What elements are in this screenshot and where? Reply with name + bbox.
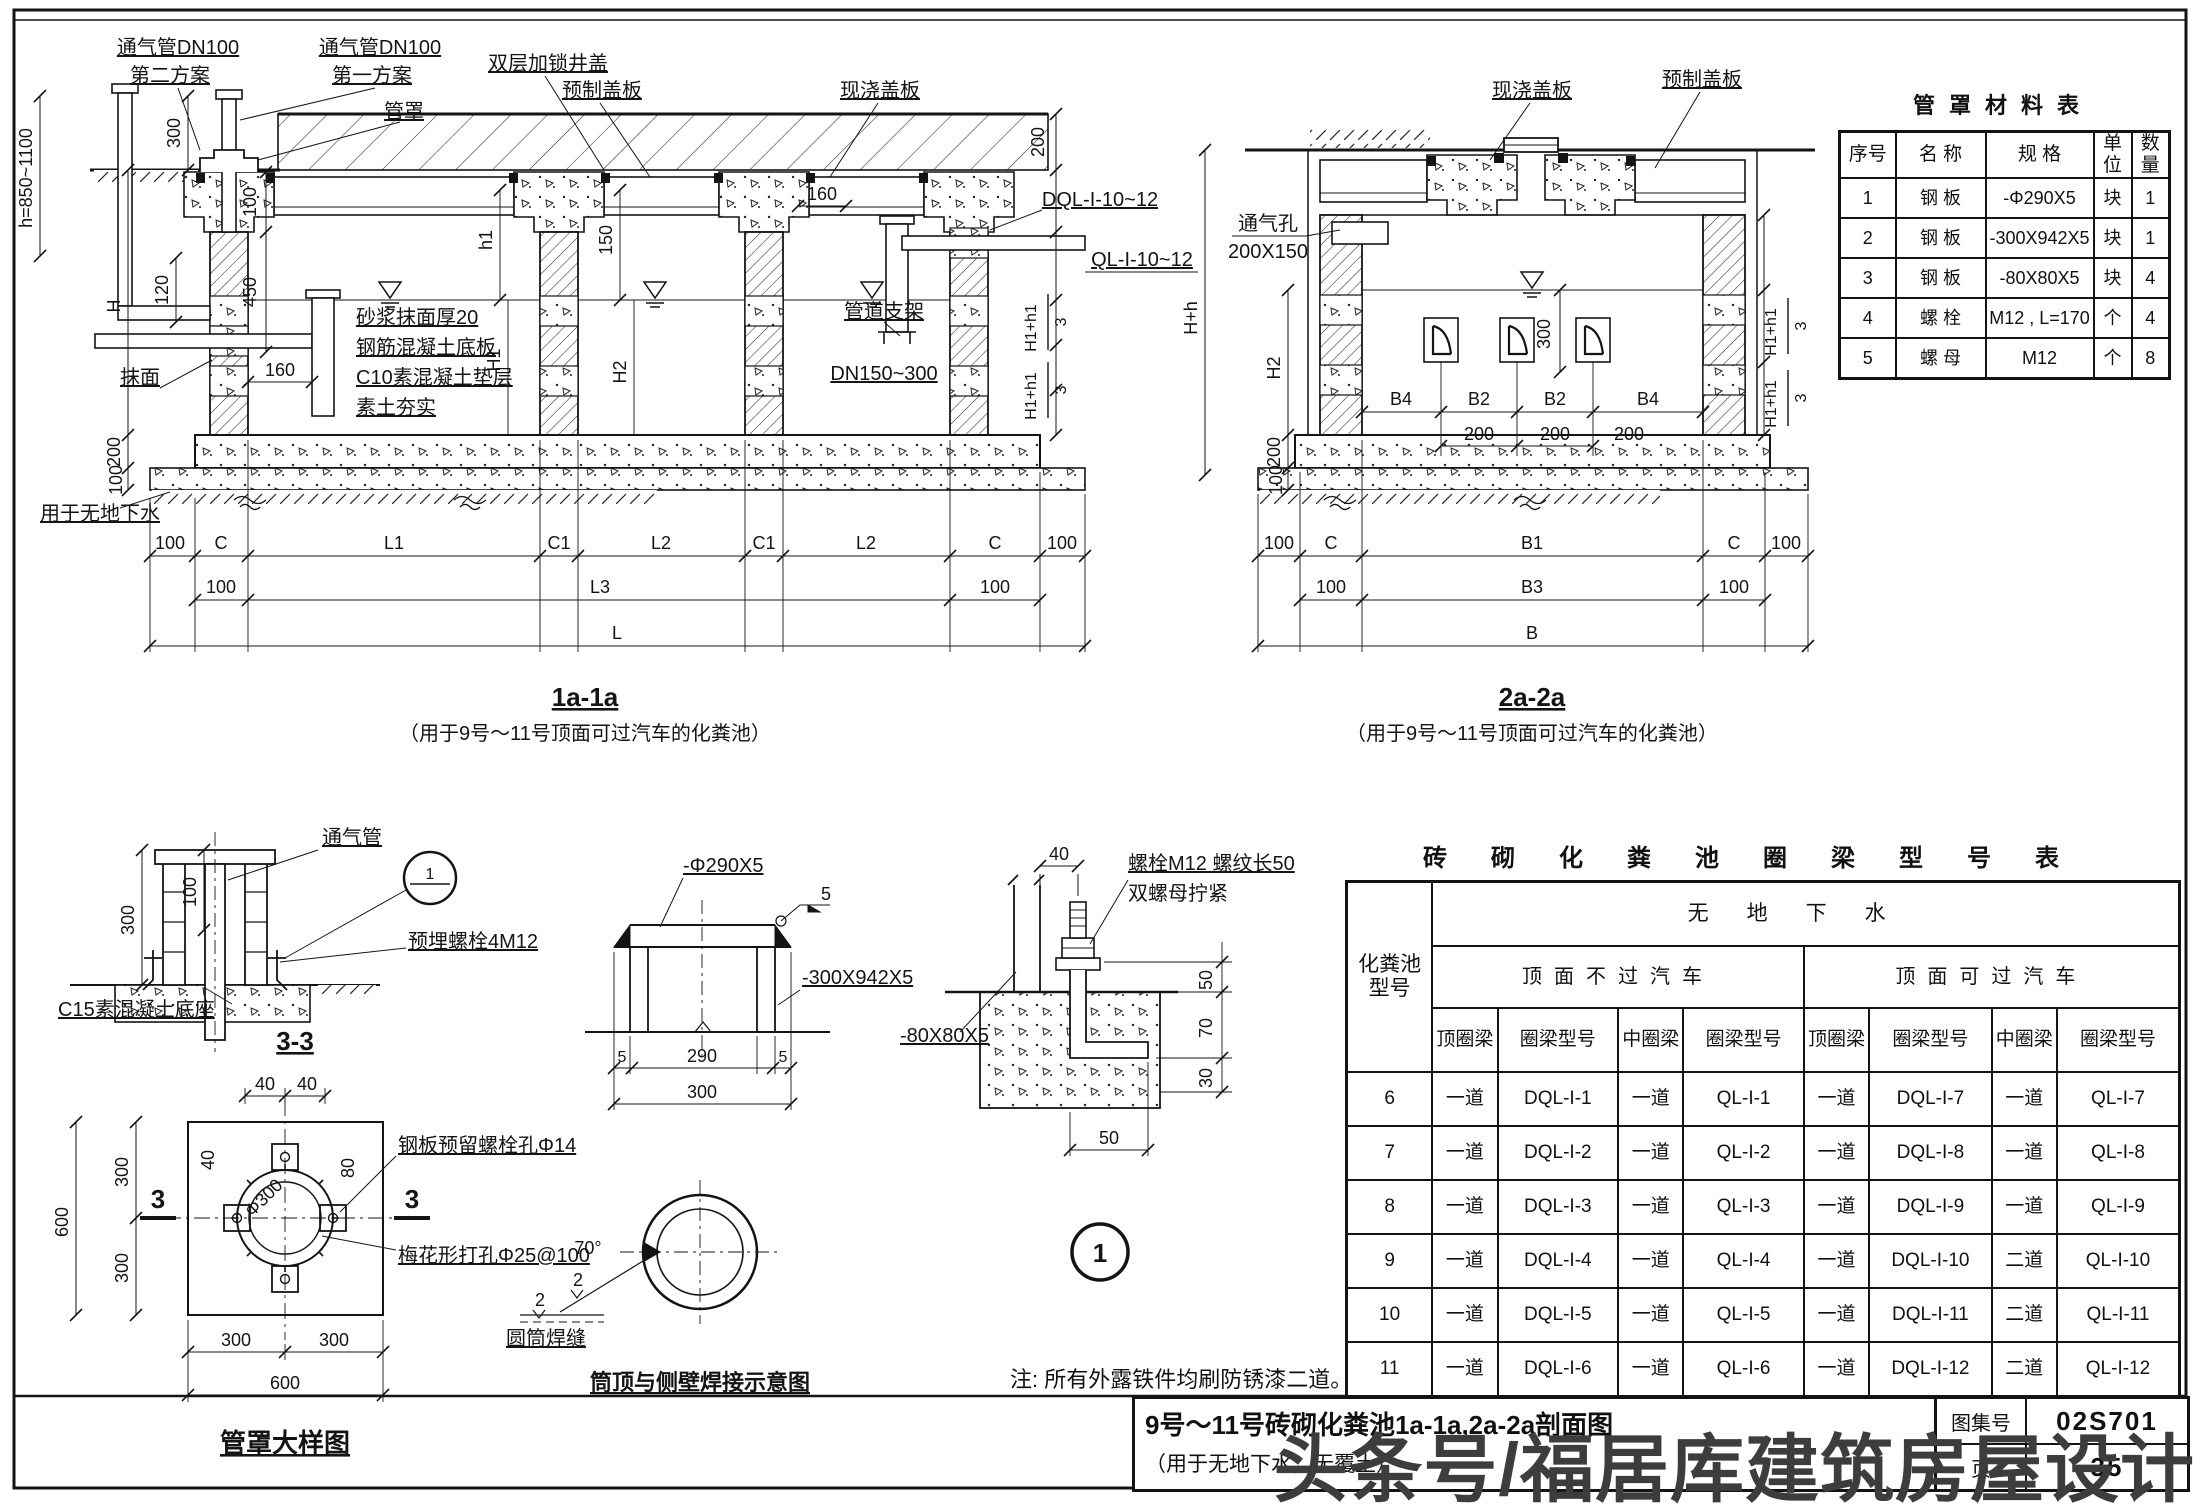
cell: 一道 <box>1804 1234 1869 1288</box>
dim-100j: 100 <box>1316 577 1346 597</box>
cell: DQL-I-11 <box>1869 1288 1992 1342</box>
dim-fr1-3: 3 <box>1053 317 1070 326</box>
cell: 一道 <box>1804 1072 1869 1126</box>
plan-sec-mark-right: 3 <box>405 1184 419 1214</box>
sec2-vent-label-1: 通气孔 <box>1238 212 1298 235</box>
dim-100b: 100 <box>106 465 126 495</box>
cell: 一道 <box>1618 1288 1683 1342</box>
dim-B1: B1 <box>1521 533 1543 553</box>
dim-200a: 200 <box>104 437 124 467</box>
cell: 一道 <box>1618 1180 1683 1234</box>
col-header: 单位 <box>2094 132 2132 179</box>
sec2-structure <box>1245 128 1815 510</box>
dim-H: H <box>104 300 124 313</box>
cell: 一道 <box>1992 1126 2057 1180</box>
materials-row: 2 钢 板 -300X942X5 块 1 <box>1840 218 2170 258</box>
col-header: 数量 <box>2132 132 2170 179</box>
dim-150: 150 <box>596 225 616 255</box>
type-line2: 型号 <box>1348 977 1431 1001</box>
materials-table: 序号 名 称 规 格 单位 数量 1 钢 板 -Φ290X5 块 1 2 钢 板… <box>1838 130 2171 380</box>
dim-L: L <box>612 623 622 643</box>
cell: 个 <box>2094 298 2132 338</box>
no-groundwater-label: 用于无地下水 <box>40 502 160 525</box>
detail-3-3: 通气管 1 预埋螺栓4M12 C15素混凝土底座 300 100 3-3 <box>58 826 538 1056</box>
cell: 4 <box>2132 298 2170 338</box>
cell: QL-I-6 <box>1683 1342 1803 1397</box>
cell: 一道 <box>1432 1180 1497 1234</box>
cell: QL-I-7 <box>2057 1072 2180 1126</box>
weld-2a: 2 <box>573 1270 583 1290</box>
mortar-note-1: 砂浆抹面厚20 <box>356 306 478 329</box>
beam-row: 10一道 DQL-I-5一道 QL-I-5一道 DQL-I-11二道 QL-I-… <box>1347 1288 2180 1342</box>
dim-300: 300 <box>164 118 184 148</box>
weld-2b: 2 <box>535 1290 545 1310</box>
dim-30: 30 <box>1196 1068 1216 1088</box>
dim-300h: 300 <box>687 1082 717 1102</box>
dim-300b: 300 <box>1534 319 1554 349</box>
materials-header-row: 序号 名 称 规 格 单位 数量 <box>1840 132 2170 179</box>
pipe-support-label: 管道支架 <box>844 300 924 323</box>
plan-hole-label: 钢板预留螺栓孔Φ14 <box>398 1134 576 1157</box>
ql-label: QL-I-10~12 <box>1091 249 1193 271</box>
capd-plate2-label: -300X942X5 <box>802 967 913 989</box>
dim-fr3-3: 3 <box>1793 321 1810 330</box>
vent2-label-2: 第二方案 <box>130 64 210 87</box>
dim-300e: 300 <box>112 1253 132 1283</box>
col-header: 名 称 <box>1896 132 1986 179</box>
cell: 二道 <box>1992 1234 2057 1288</box>
capd-texts: -Φ290X5 5 -300X942X5 5 290 5 300 <box>618 855 914 1102</box>
cell: DQL-I-8 <box>1869 1126 1992 1180</box>
dim-5b: 5 <box>779 1049 788 1066</box>
d33-vent-label: 通气管 <box>322 826 382 849</box>
cell: DQL-I-10 <box>1869 1234 1992 1288</box>
weld-schematic: 70° 2 2 圆筒焊缝 筒顶与侧壁焊接示意图 <box>506 1180 810 1395</box>
dim-290: 290 <box>687 1046 717 1066</box>
dim-B4b: B4 <box>1637 389 1659 409</box>
dim-C1a: C1 <box>547 533 570 553</box>
cell: QL-I-3 <box>1683 1180 1803 1234</box>
bolt-detail: 40 螺栓M12 螺纹长50 双螺母拧紧 50 70 30 50 -80X80X… <box>900 844 1295 1280</box>
dim-C1b: C1 <box>752 533 775 553</box>
cell: -300X942X5 <box>1986 218 2094 258</box>
beam-row: 6一道 DQL-I-1一道 QL-I-1一道 DQL-I-7一道 QL-I-7 <box>1347 1072 2180 1126</box>
beam-row: 7一道 DQL-I-2一道 QL-I-2一道 DQL-I-8一道 QL-I-8 <box>1347 1126 2180 1180</box>
plan-plum-label: 梅花形打孔Φ25@100 <box>398 1244 590 1267</box>
dim-Hh: H+h <box>1181 301 1201 335</box>
dim-fr2: H1+h1 <box>1023 372 1040 420</box>
cell: 8 <box>1347 1180 1433 1234</box>
dim-300f: 300 <box>221 1330 251 1350</box>
dim-B4a: B4 <box>1390 389 1412 409</box>
cell: DQL-I-7 <box>1869 1072 1992 1126</box>
cell: QL-I-10 <box>2057 1234 2180 1288</box>
vent2-label-1: 通气管DN100 <box>117 36 239 59</box>
beam-header-row-3: 顶圈梁 圈梁型号 中圈梁 圈梁型号 顶圈梁 圈梁型号 中圈梁 圈梁型号 <box>1347 1008 2180 1072</box>
dim-160a: 160 <box>265 360 295 380</box>
cell: 4 <box>1840 298 1896 338</box>
cell: 4 <box>2132 258 2170 298</box>
dim-5a: 5 <box>618 1049 627 1066</box>
dim-100l: 100 <box>180 877 200 907</box>
cell: 钢 板 <box>1896 258 1986 298</box>
dim-40c: 40 <box>198 1150 218 1170</box>
cell: 11 <box>1347 1342 1433 1397</box>
sec1-title: 1a-1a <box>552 682 619 712</box>
dim-40d: 40 <box>1049 844 1069 864</box>
materials-row: 3 钢 板 -80X80X5 块 4 <box>1840 258 2170 298</box>
dim-100k: 100 <box>1719 577 1749 597</box>
cell: 个 <box>2094 338 2132 379</box>
dim-300g: 300 <box>319 1330 349 1350</box>
dim-fr3: H1+h1 <box>1763 308 1780 356</box>
dim-100a: 100 <box>240 187 260 217</box>
plan-structure <box>70 1088 430 1402</box>
plaster-label: 抹面 <box>120 366 160 389</box>
cell: DQL-I-2 <box>1498 1126 1618 1180</box>
sec1-subtitle: （用于9号～11号顶面可过汽车的化粪池） <box>399 722 771 745</box>
dim-50a: 50 <box>1196 970 1216 990</box>
sec2-title: 2a-2a <box>1499 682 1566 712</box>
cell: 螺 母 <box>1896 338 1986 379</box>
mortar-note-4: 素土夯实 <box>356 396 436 419</box>
cell: 2 <box>1840 218 1896 258</box>
dim-h850: h=850~1100 <box>16 128 36 228</box>
cell: QL-I-11 <box>2057 1288 2180 1342</box>
dim-100d: 100 <box>1047 533 1077 553</box>
cell: QL-I-2 <box>1683 1126 1803 1180</box>
cell: -80X80X5 <box>1986 258 2094 298</box>
materials-table-title: 管罩材料表 <box>1838 88 2168 120</box>
section-2a-2a: 现浇盖板 预制盖板 通气孔 200X150 H2 200 100 300 B4 … <box>1228 68 1815 745</box>
d33-title: 3-3 <box>276 1026 314 1056</box>
dim-B: B <box>1526 623 1538 643</box>
dim-40b: 40 <box>297 1074 317 1094</box>
boltd-label-1: 螺栓M12 螺纹长50 <box>1128 852 1295 875</box>
col-header: 中圈梁 <box>1992 1008 2057 1072</box>
locking-cover-label: 双层加锁井盖 <box>488 52 608 75</box>
cell: QL-I-4 <box>1683 1234 1803 1288</box>
sec2-precast-label: 预制盖板 <box>1662 68 1742 91</box>
d33-callout-1: 1 <box>426 866 435 883</box>
dim-H1: H1 <box>484 348 504 371</box>
cell: DQL-I-1 <box>1498 1072 1618 1126</box>
dim-200e: 200 <box>1540 424 1570 444</box>
dn-label: DN150~300 <box>830 363 937 385</box>
dim-100h: 100 <box>1264 533 1294 553</box>
cell: 一道 <box>1992 1072 2057 1126</box>
materials-row: 1 钢 板 -Φ290X5 块 1 <box>1840 178 2170 218</box>
cell: 一道 <box>1432 1126 1497 1180</box>
dim-100g: 100 <box>1266 465 1286 495</box>
dim-120: 120 <box>152 275 172 305</box>
cell: 二道 <box>1992 1342 2057 1397</box>
dim-fr4-3: 3 <box>1793 393 1810 402</box>
dim-160b: 160 <box>807 184 837 204</box>
dim-50b: 50 <box>1099 1128 1119 1148</box>
cell: QL-I-8 <box>2057 1126 2180 1180</box>
sec2-subtitle: （用于9号～11号顶面可过汽车的化粪池） <box>1346 722 1718 745</box>
mortar-note-2: 钢筋混凝土底板 <box>356 336 496 359</box>
dim-B2b: B2 <box>1544 389 1566 409</box>
materials-row: 4 螺 栓 M12 , L=170 个 4 <box>1840 298 2170 338</box>
dim-200b: 200 <box>1028 127 1048 157</box>
cap-plan: 600 300 300 40 40 40 80 Φ300 3 3 钢板预留螺栓孔… <box>52 1074 590 1458</box>
dim-L1: L1 <box>384 533 404 553</box>
cell: 一道 <box>1992 1180 2057 1234</box>
cell: DQL-I-4 <box>1498 1234 1618 1288</box>
boltd-label-2: 双螺母拧紧 <box>1128 882 1228 905</box>
plan-title: 管罩大样图 <box>220 1428 350 1458</box>
drawing-sheet: 通气管DN100 第二方案 通气管DN100 第一方案 双层加锁井盖 管罩 预制… <box>0 0 2200 1512</box>
cell: DQL-I-3 <box>1498 1180 1618 1234</box>
cell: 一道 <box>1618 1234 1683 1288</box>
cell: 5 <box>1840 338 1896 379</box>
col-header: 中圈梁 <box>1618 1008 1683 1072</box>
dim-h1: h1 <box>476 230 496 250</box>
col-header-nogw: 无地下水 <box>1432 882 2179 947</box>
cell: QL-I-1 <box>1683 1072 1803 1126</box>
type-line1: 化粪池 <box>1348 953 1431 977</box>
dim-Cc: C <box>1325 533 1338 553</box>
pipe-cap-label: 管罩 <box>384 100 424 123</box>
cell: 块 <box>2094 178 2132 218</box>
col-header: 圈梁型号 <box>1683 1008 1803 1072</box>
materials-row: 5 螺 母 M12 个 8 <box>1840 338 2170 379</box>
cell: DQL-I-6 <box>1498 1342 1618 1397</box>
sec2-vent-label-2: 200X150 <box>1228 241 1308 263</box>
cell: 螺 栓 <box>1896 298 1986 338</box>
dim-40a: 40 <box>255 1074 275 1094</box>
cell: 一道 <box>1432 1342 1497 1397</box>
cell: 10 <box>1347 1288 1433 1342</box>
cell: DQL-I-12 <box>1869 1342 1992 1397</box>
dim-fr4: H1+h1 <box>1763 380 1780 428</box>
dim-L2a: L2 <box>651 533 671 553</box>
capd-plate1-label: -Φ290X5 <box>683 855 763 877</box>
general-note: 注: 所有外露铁件均刷防锈漆二道。 <box>1010 1362 1352 1394</box>
cell: 8 <box>2132 338 2170 379</box>
dim-70: 70 <box>1196 1018 1216 1038</box>
cast-slab-label: 现浇盖板 <box>840 79 920 102</box>
cell: 1 <box>2132 218 2170 258</box>
col-header: 圈梁型号 <box>1498 1008 1618 1072</box>
dim-L2b: L2 <box>856 533 876 553</box>
dim-200d: 200 <box>1464 424 1494 444</box>
dim-200c: 200 <box>1264 437 1284 467</box>
cap-elevation: -Φ290X5 5 -300X942X5 5 290 5 300 <box>585 855 913 1110</box>
cell: 1 <box>2132 178 2170 218</box>
dim-300d: 300 <box>112 1157 132 1187</box>
cell: 块 <box>2094 218 2132 258</box>
beam-row: 11一道 DQL-I-6一道 QL-I-6一道 DQL-I-12二道 QL-I-… <box>1347 1342 2180 1397</box>
cell: 一道 <box>1618 1342 1683 1397</box>
cell: QL-I-5 <box>1683 1288 1803 1342</box>
capd-structure <box>585 878 830 1110</box>
dim-Cd: C <box>1728 533 1741 553</box>
sec2-cast-label: 现浇盖板 <box>1492 79 1572 102</box>
beam-row: 8一道 DQL-I-3一道 QL-I-3一道 DQL-I-9一道 QL-I-9 <box>1347 1180 2180 1234</box>
detail-callout-1: 1 <box>1072 1224 1128 1280</box>
dim-600a: 600 <box>52 1207 72 1237</box>
dim-600b: 600 <box>270 1373 300 1393</box>
cell: DQL-I-9 <box>1869 1180 1992 1234</box>
watermark: 头条号/福居库建筑房屋设计 <box>990 1410 2195 1512</box>
cell: M12 <box>1986 338 2094 379</box>
vent1-label-2: 第一方案 <box>332 64 412 87</box>
weld-seam-label: 圆筒焊缝 <box>506 1327 586 1350</box>
col-header: 圈梁型号 <box>2057 1008 2180 1072</box>
dim-B3: B3 <box>1521 577 1543 597</box>
cell: 一道 <box>1618 1072 1683 1126</box>
cell: 6 <box>1347 1072 1433 1126</box>
cell: DQL-I-5 <box>1498 1288 1618 1342</box>
dim-100i: 100 <box>1771 533 1801 553</box>
capd-weld-5: 5 <box>821 884 831 904</box>
col-header: 规 格 <box>1986 132 2094 179</box>
cell: 一道 <box>1618 1126 1683 1180</box>
precast-slab-label: 预制盖板 <box>562 79 642 102</box>
dim-C: C <box>215 533 228 553</box>
dql-label: DQL-I-10~12 <box>1042 189 1158 211</box>
weld-title: 筒顶与侧壁焊接示意图 <box>590 1370 810 1395</box>
section-1a-1a: 通气管DN100 第二方案 通气管DN100 第一方案 双层加锁井盖 管罩 预制… <box>16 36 1211 745</box>
beam-table: 化粪池 型号 无地下水 顶面不过汽车 顶面可过汽车 顶圈梁 圈梁型号 中圈梁 圈… <box>1345 880 2181 1398</box>
col-header: 顶圈梁 <box>1804 1008 1869 1072</box>
cell: 一道 <box>1804 1126 1869 1180</box>
cell: 钢 板 <box>1896 218 1986 258</box>
cell: 一道 <box>1432 1072 1497 1126</box>
cell: 一道 <box>1804 1180 1869 1234</box>
dim-fr1: H1+h1 <box>1023 304 1040 352</box>
dim-200f: 200 <box>1614 424 1644 444</box>
dim-450: 450 <box>240 277 260 307</box>
col-header: 圈梁型号 <box>1869 1008 1992 1072</box>
vent1-label-1: 通气管DN100 <box>319 36 441 59</box>
dim-B2a: B2 <box>1468 389 1490 409</box>
cell: 3 <box>1840 258 1896 298</box>
cell: QL-I-12 <box>2057 1342 2180 1397</box>
plan-sec-mark-left: 3 <box>151 1184 165 1214</box>
cell: -Φ290X5 <box>1986 178 2094 218</box>
boltd-plate-label: -80X80X5 <box>900 1025 989 1047</box>
d33-base-label: C15素混凝土底座 <box>58 998 215 1021</box>
beam-row: 9一道 DQL-I-4一道 QL-I-4一道 DQL-I-10二道 QL-I-1… <box>1347 1234 2180 1288</box>
col-header-car: 顶面可过汽车 <box>1804 946 2180 1008</box>
cell: 块 <box>2094 258 2132 298</box>
beam-header-row-1: 化粪池 型号 无地下水 <box>1347 882 2180 947</box>
col-header-type: 化粪池 型号 <box>1347 882 1433 1073</box>
beam-table-title: 砖砌化粪池圈梁型号表 <box>1345 838 2181 873</box>
cell: 一道 <box>1804 1342 1869 1397</box>
beam-header-row-2: 顶面不过汽车 顶面可过汽车 <box>1347 946 2180 1008</box>
dim-fr2-3: 3 <box>1053 385 1070 394</box>
weld-70deg: 70° <box>574 1238 601 1258</box>
callout-1-number: 1 <box>1093 1238 1107 1268</box>
cell: 9 <box>1347 1234 1433 1288</box>
col-header: 序号 <box>1840 132 1896 179</box>
cell: M12 , L=170 <box>1986 298 2094 338</box>
dim-100c: 100 <box>155 533 185 553</box>
cell: 一道 <box>1804 1288 1869 1342</box>
dim-100e: 100 <box>206 577 236 597</box>
dim-100f: 100 <box>980 577 1010 597</box>
dim-L3: L3 <box>590 577 610 597</box>
plan-texts: 600 300 300 40 40 40 80 Φ300 3 3 钢板预留螺栓孔… <box>52 1074 590 1458</box>
dim-Cb: C <box>989 533 1002 553</box>
cell: QL-I-9 <box>2057 1180 2180 1234</box>
d33-bolt-label: 预埋螺栓4M12 <box>408 930 538 953</box>
cell: 一道 <box>1432 1288 1497 1342</box>
col-header: 顶圈梁 <box>1432 1008 1497 1072</box>
cell: 7 <box>1347 1126 1433 1180</box>
dim-H2: H2 <box>610 360 630 383</box>
cell: 二道 <box>1992 1288 2057 1342</box>
dim-80: 80 <box>338 1158 358 1178</box>
cell: 钢 板 <box>1896 178 1986 218</box>
col-header-nocar: 顶面不过汽车 <box>1432 946 1804 1008</box>
cell: 1 <box>1840 178 1896 218</box>
dim-H2b: H2 <box>1264 356 1284 379</box>
dim-300c: 300 <box>118 905 138 935</box>
cell: 一道 <box>1432 1234 1497 1288</box>
